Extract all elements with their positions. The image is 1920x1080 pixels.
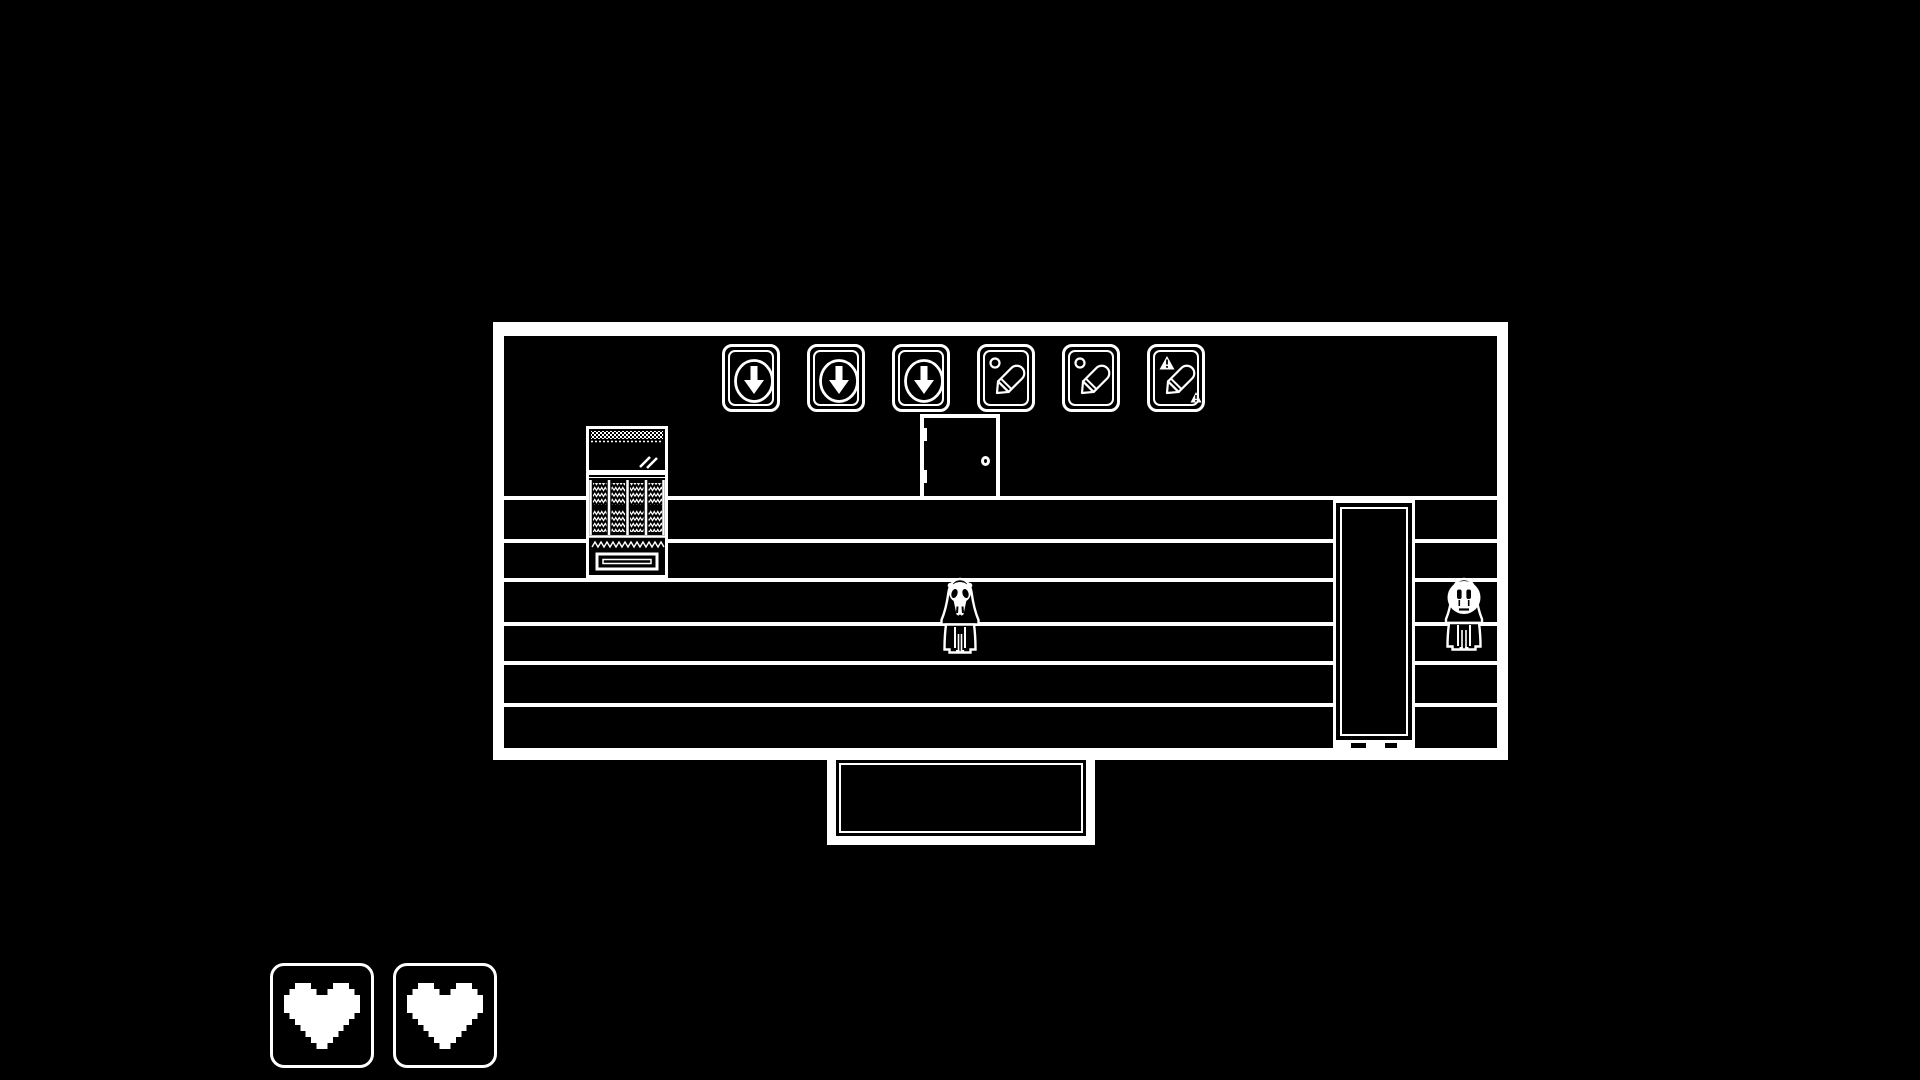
down-arrow-sign[interactable]: [722, 344, 780, 412]
game-screen: { "scene": { "name": "monochrome-room", …: [0, 0, 1920, 1080]
vending-dispenser-slot: [597, 554, 657, 569]
poster-down-arrow-icon: [731, 353, 777, 409]
door-hinge-icon: [921, 428, 927, 441]
down-arrow-sign[interactable]: [892, 344, 950, 412]
poster-crayon-icon: [1071, 353, 1117, 409]
sad-robed-figure[interactable]: [1432, 576, 1496, 652]
robe: [945, 625, 976, 653]
crayon-sign[interactable]: [1062, 344, 1120, 412]
tall-door-base: [1333, 743, 1415, 748]
hanging-sign[interactable]: [827, 751, 1095, 845]
crayon-warning-sign[interactable]: [1147, 344, 1205, 412]
base-dash: [1351, 743, 1366, 748]
room: [493, 322, 1508, 760]
heart-icon: [407, 983, 483, 1049]
skull-robed-figure[interactable]: [930, 577, 990, 655]
poster-crayon-warning-icon: [1156, 353, 1202, 409]
base-dash: [1385, 743, 1397, 748]
door-hinge-icon: [921, 470, 927, 483]
door[interactable]: [920, 414, 1000, 500]
sad-face: [1448, 581, 1481, 614]
heart-slot: [270, 963, 374, 1068]
vending-machine[interactable]: [586, 426, 668, 578]
hanging-sign-inner-panel: [839, 763, 1083, 833]
down-arrow-sign[interactable]: [807, 344, 865, 412]
tall-door-inner-panel: [1340, 507, 1408, 736]
robe: [1448, 623, 1481, 650]
heart-slot: [393, 963, 497, 1068]
vending-top-grille: [591, 431, 663, 439]
doorknob-icon: [981, 456, 990, 466]
poster-down-arrow-icon: [901, 353, 947, 409]
heart-icon: [284, 983, 360, 1049]
tall-door[interactable]: [1333, 500, 1415, 743]
poster-crayon-icon: [986, 353, 1032, 409]
crayon-sign[interactable]: [977, 344, 1035, 412]
room-interior: [504, 336, 1497, 748]
poster-down-arrow-icon: [816, 353, 862, 409]
